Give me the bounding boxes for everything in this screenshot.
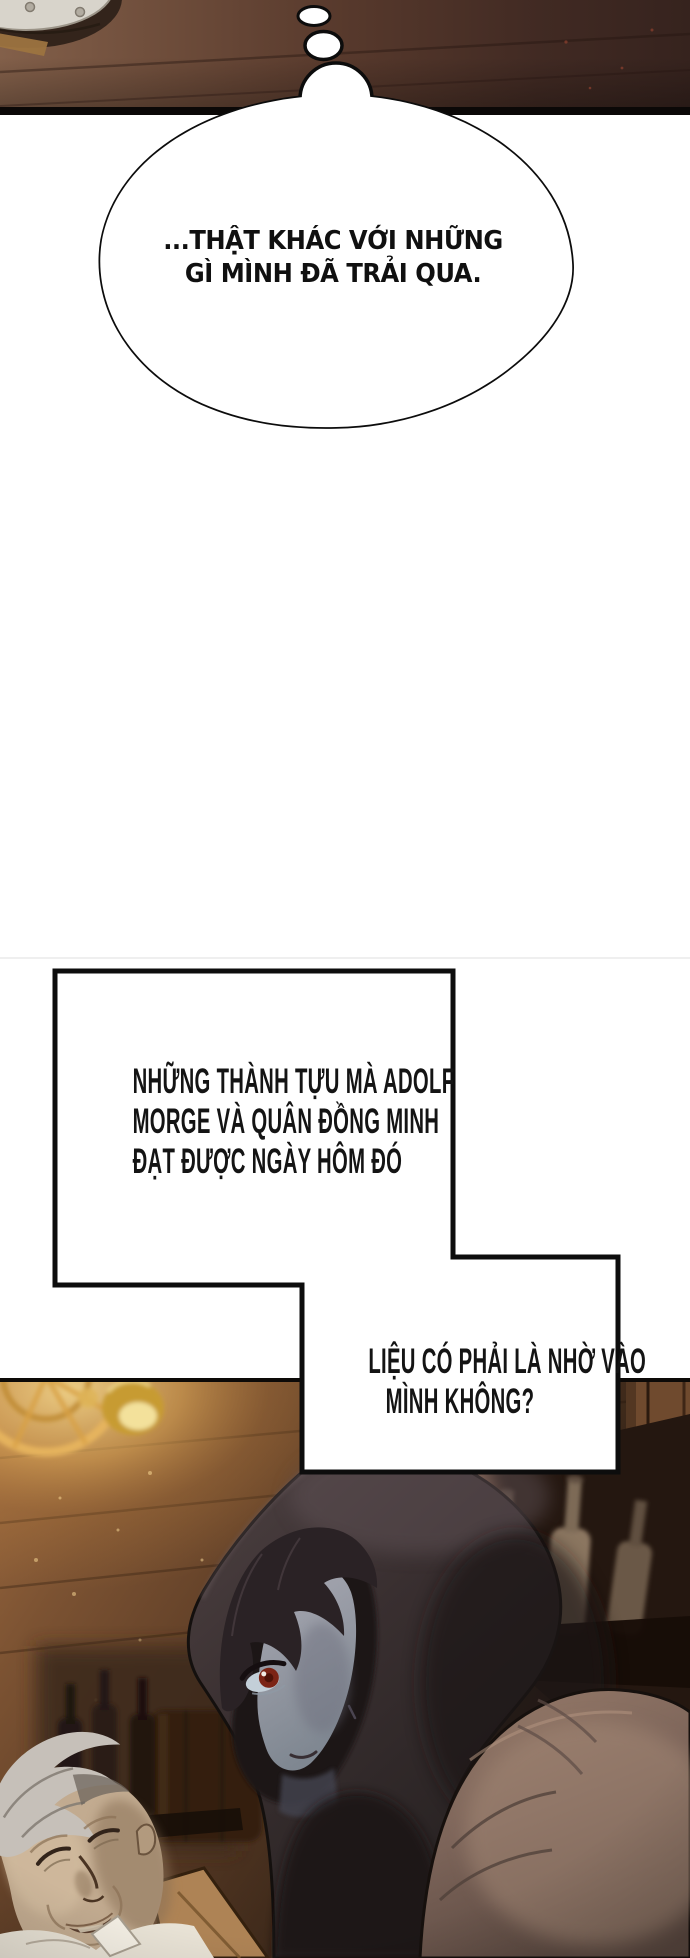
thought-line-2: GÌ MÌNH ĐÃ TRẢI QUA. — [110, 258, 556, 291]
narration2-line-1: LIỆU CÓ PHẢI LÀ NHỜ VÀO — [368, 1342, 551, 1382]
thought-line-1: ...THẬT KHÁC VỚI NHỮNG — [110, 225, 556, 258]
comic-page: ...THẬT KHÁC VỚI NHỮNG GÌ MÌNH ĐÃ TRẢI Q… — [0, 0, 690, 1958]
narration1-line-2: MORGE VÀ QUÂN ĐỒNG MINH — [133, 1102, 364, 1142]
thought-bubble-text: ...THẬT KHÁC VỚI NHỮNG GÌ MÌNH ĐÃ TRẢI Q… — [110, 225, 556, 291]
narration1-line-1: NHỮNG THÀNH TỰU MÀ ADOLF — [133, 1062, 364, 1102]
vignette — [0, 1378, 690, 1958]
narration1-line-3: ĐẠT ĐƯỢC NGÀY HÔM ĐÓ — [133, 1142, 364, 1182]
panel-bottom-tavern — [0, 1378, 690, 1958]
panel-seam-line — [0, 957, 690, 959]
thought-dot-2 — [305, 32, 342, 60]
thought-dot-1 — [298, 7, 330, 26]
narration2-line-2: MÌNH KHÔNG? — [368, 1382, 551, 1422]
narration-box-2-text: LIỆU CÓ PHẢI LÀ NHỜ VÀO MÌNH KHÔNG? — [368, 1342, 551, 1422]
narration-box-1-text: NHỮNG THÀNH TỰU MÀ ADOLF MORGE VÀ QUÂN Đ… — [133, 1062, 364, 1182]
